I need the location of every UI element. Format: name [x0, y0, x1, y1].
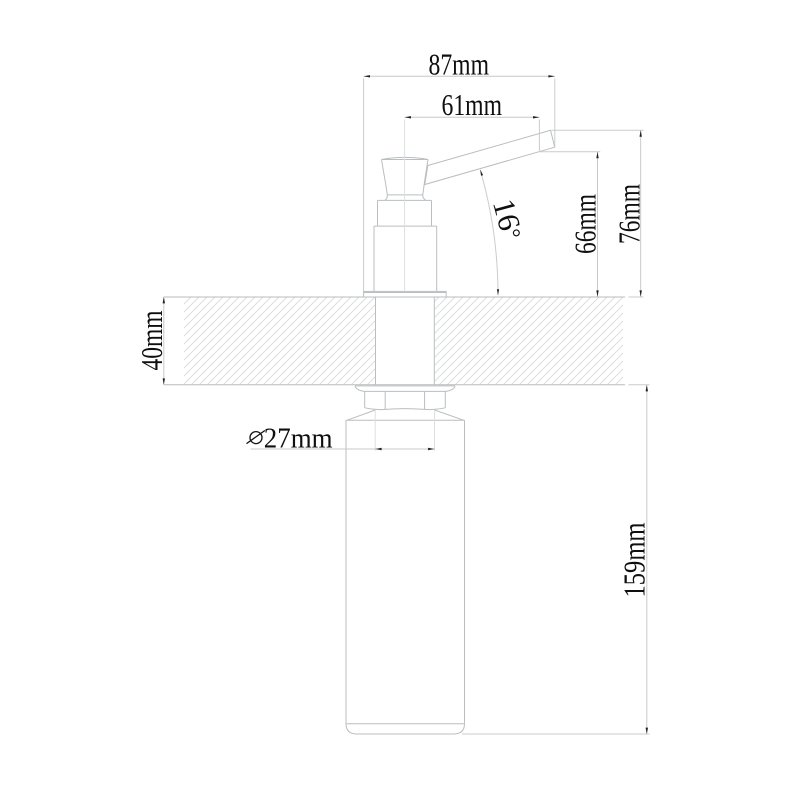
- svg-text:61mm: 61mm: [442, 87, 503, 122]
- svg-text:76mm: 76mm: [612, 184, 647, 244]
- svg-text:16°: 16°: [486, 195, 530, 243]
- svg-text:87mm: 87mm: [429, 47, 490, 82]
- svg-text:66mm: 66mm: [568, 194, 603, 254]
- svg-text:40mm: 40mm: [134, 311, 169, 371]
- svg-text:27mm: 27mm: [264, 423, 333, 455]
- svg-text:159mm: 159mm: [617, 523, 652, 598]
